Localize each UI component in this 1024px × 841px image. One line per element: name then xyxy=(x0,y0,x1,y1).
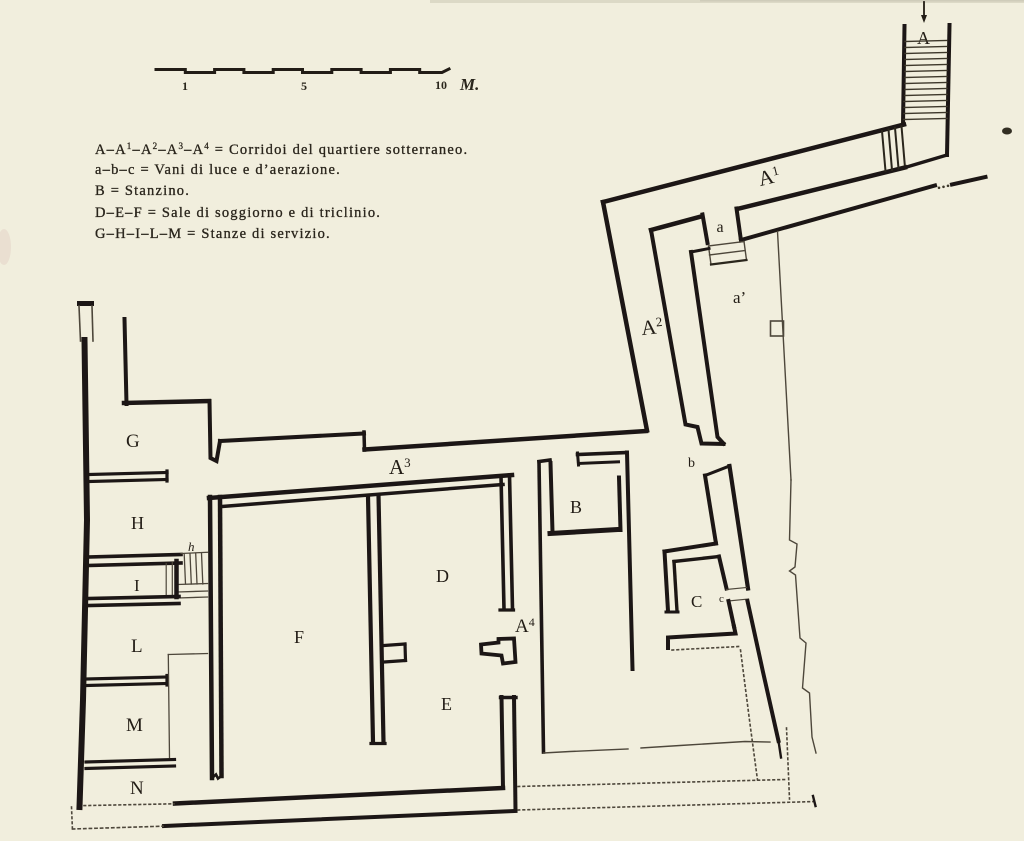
svg-text:D: D xyxy=(436,566,449,586)
svg-text:G: G xyxy=(126,431,140,452)
svg-text:a’: a’ xyxy=(733,288,746,307)
svg-text:H: H xyxy=(131,513,144,533)
svg-text:B: B xyxy=(570,497,582,517)
svg-text:b: b xyxy=(688,456,695,471)
svg-text:a: a xyxy=(717,219,724,236)
svg-text:M.: M. xyxy=(459,75,479,94)
svg-text:10: 10 xyxy=(435,78,447,92)
svg-text:L: L xyxy=(131,636,143,657)
svg-text:A1: A1 xyxy=(756,163,783,192)
svg-text:M: M xyxy=(126,715,143,736)
svg-text:F: F xyxy=(294,627,304,647)
svg-text:c: c xyxy=(719,593,724,605)
svg-text:E: E xyxy=(441,694,452,714)
svg-text:h: h xyxy=(188,539,195,554)
svg-text:1: 1 xyxy=(182,79,188,93)
svg-text:5: 5 xyxy=(301,79,307,93)
svg-text:N: N xyxy=(130,778,144,799)
svg-text:A3: A3 xyxy=(389,455,411,479)
svg-text:I: I xyxy=(134,576,140,595)
svg-text:A2: A2 xyxy=(640,314,664,340)
svg-text:A4: A4 xyxy=(515,615,535,637)
svg-text:A: A xyxy=(917,28,930,48)
svg-text:C: C xyxy=(691,592,702,611)
